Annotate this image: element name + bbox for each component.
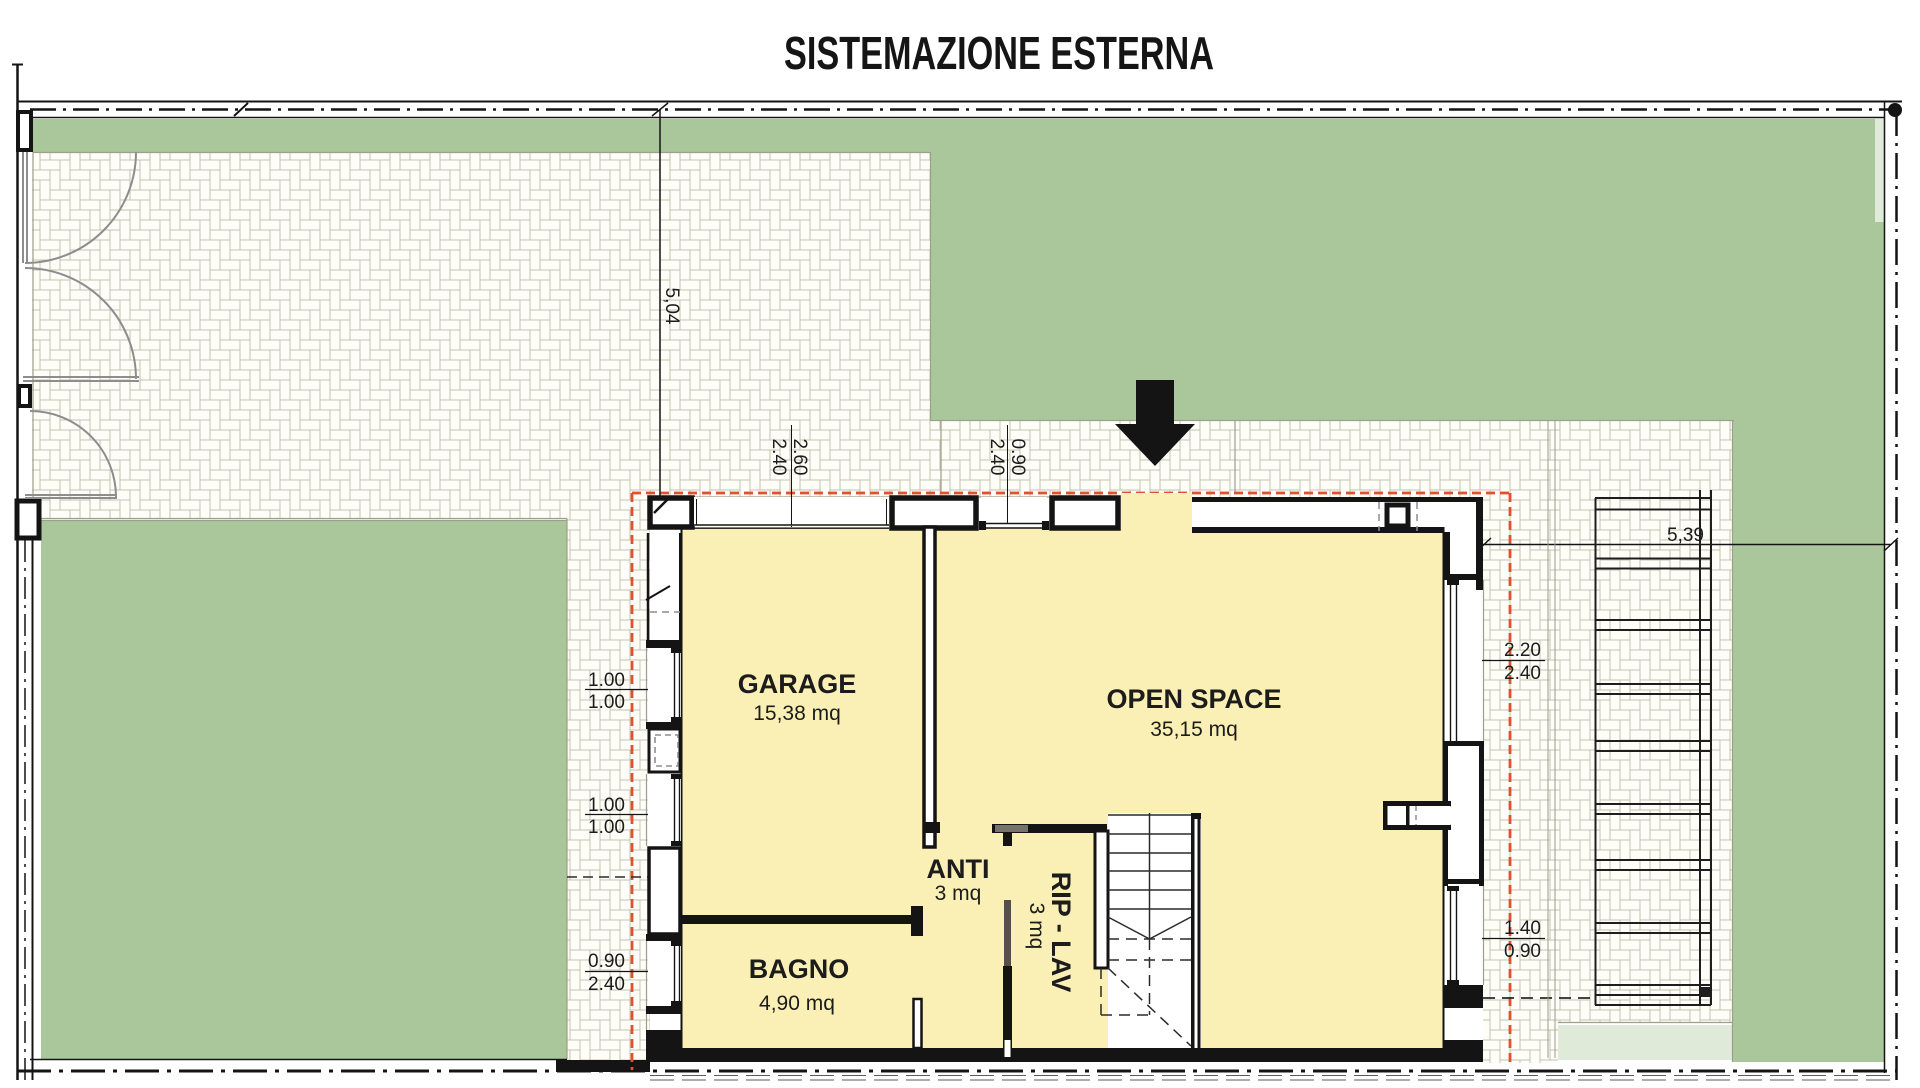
svg-text:SISTEMAZIONE ESTERNA: SISTEMAZIONE ESTERNA [784,27,1214,79]
svg-text:35,15 mq: 35,15 mq [1150,718,1238,741]
svg-text:3 mq: 3 mq [1025,903,1048,950]
svg-text:BAGNO: BAGNO [749,954,850,984]
svg-text:GARAGE: GARAGE [738,669,857,699]
svg-text:2.40: 2.40 [986,439,1007,476]
svg-text:0.90: 0.90 [1007,439,1028,476]
svg-text:5,39: 5,39 [1667,525,1704,546]
svg-text:2.40: 2.40 [768,439,789,476]
svg-text:ANTI: ANTI [927,854,990,884]
svg-text:2.60: 2.60 [789,439,810,476]
svg-text:3 mq: 3 mq [935,882,982,905]
svg-text:2.40: 2.40 [588,974,625,995]
svg-text:4,90 mq: 4,90 mq [759,992,835,1015]
svg-text:1.40: 1.40 [1504,918,1541,939]
svg-text:0.90: 0.90 [588,951,625,972]
svg-text:1.00: 1.00 [588,692,625,713]
svg-text:5,04: 5,04 [661,288,682,325]
svg-text:1.00: 1.00 [588,795,625,816]
svg-text:0.90: 0.90 [1504,941,1541,962]
svg-text:2.20: 2.20 [1504,640,1541,661]
svg-text:1.00: 1.00 [588,817,625,838]
svg-text:1.00: 1.00 [588,670,625,691]
svg-text:OPEN SPACE: OPEN SPACE [1106,684,1281,714]
svg-text:2.40: 2.40 [1504,663,1541,684]
svg-text:RIP - LAV: RIP - LAV [1046,872,1076,993]
svg-text:15,38 mq: 15,38 mq [753,702,841,725]
